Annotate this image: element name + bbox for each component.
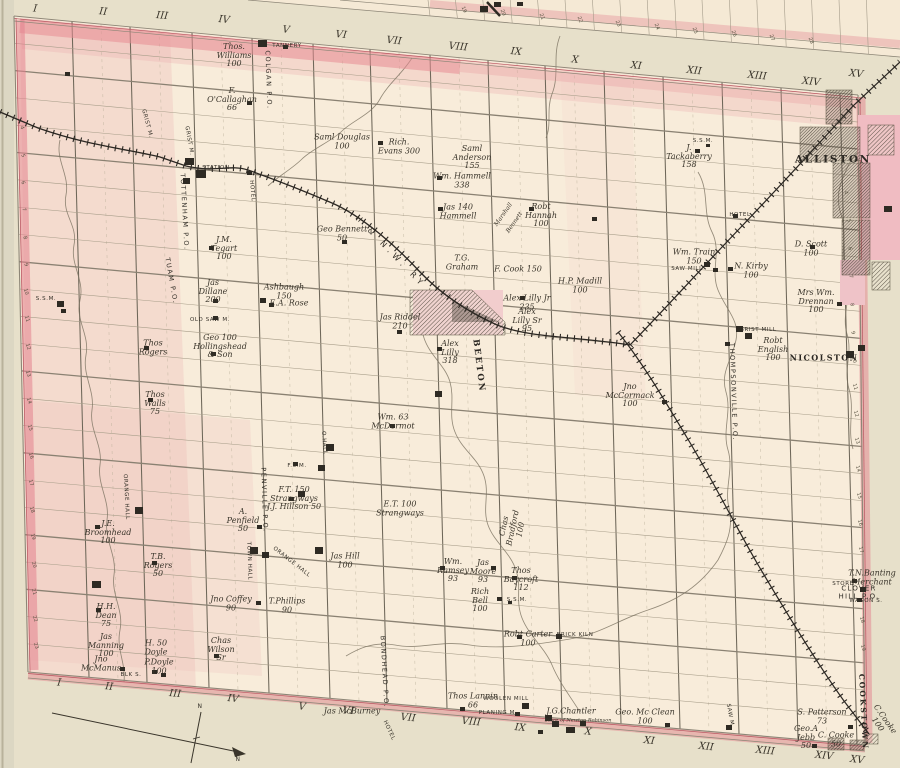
concession-numeral: XI (630, 61, 642, 73)
lot-number: 7 (20, 208, 26, 213)
map-label: SAW MILL (671, 267, 703, 273)
concession-numeral: XV (849, 755, 864, 767)
map-label: F. O'Callaghan 66 (207, 87, 257, 113)
map-label: HOTEL (729, 213, 750, 219)
lot-number: 15 (855, 492, 862, 500)
map-label: TANNERY (272, 44, 301, 50)
lot-number: 16 (856, 519, 863, 527)
map-label: Wm. 63 McDermot (371, 413, 414, 430)
concession-numeral: III (156, 11, 169, 23)
lot-number: 14 (24, 397, 31, 405)
lot-number: 6 (19, 181, 25, 186)
concession-numeral: IV (227, 694, 239, 706)
map-label: A. Penfield 50 (227, 508, 260, 534)
lot-number: 12 (23, 343, 30, 351)
map-label: Jas Hill 100 (330, 552, 359, 569)
map-label: F. Cook 150 (494, 266, 542, 275)
lot-number: 5 (19, 154, 25, 159)
map-label: Robt English 100 (758, 337, 789, 363)
map-label: Chas Wilson Sr (207, 637, 234, 663)
map-label: E.A. Rose (270, 300, 309, 309)
map-label: THOMPSONVILLE P.O. (728, 343, 738, 441)
map-label: STATION (202, 166, 229, 172)
map-label: N (197, 704, 202, 710)
map-label: OLD SAW M. (190, 318, 230, 324)
lot-number: 20 (498, 9, 505, 17)
lot-number: 21 (29, 588, 36, 596)
map-label: GRIST M. (139, 109, 152, 139)
map-label: Jas Dillane 200 (199, 279, 228, 305)
lot-number: 11 (22, 315, 29, 323)
concession-numeral: V (298, 702, 306, 713)
lot-number: 24 (652, 23, 659, 31)
map-label: F.T. 150 Strangways J.J. Hillson 50 (267, 486, 321, 512)
lot-number: 27 (767, 34, 774, 42)
map-label: PLANING M. (479, 711, 518, 717)
concession-numeral: X (571, 55, 579, 66)
map-label: PENVILLE P.O. (259, 467, 268, 533)
map-label: Mrs Wm. Drennan 100 (797, 289, 834, 315)
map-label: Bennett (505, 211, 524, 234)
concession-numeral: XIV (801, 77, 820, 90)
map-label: Jas Moore 93 (470, 559, 496, 585)
concession-numeral: XIV (814, 751, 833, 764)
map-label: Wm. Train 150 (673, 248, 716, 265)
map-label: Alex Lilly Sr 95 (512, 308, 541, 334)
map-label: J. Tackaberry 158 (666, 144, 712, 170)
map-label: Jas Riddel 210 (380, 313, 421, 330)
lot-number: 22 (575, 16, 582, 24)
lot-number: 15 (25, 424, 32, 432)
map-label: ORANGE HALL (121, 474, 129, 520)
map-label: Thos. Williams 100 (217, 43, 252, 69)
concession-numeral: VII (386, 36, 402, 48)
map-label: T.G. Graham (446, 254, 479, 271)
concession-numeral: VIII (448, 42, 468, 55)
map-label: H.H. Dean 75 (95, 603, 116, 629)
map-label: C. Cooke 50 (818, 731, 854, 748)
map-label: F.S.M. (287, 464, 306, 470)
lot-number: 9 (849, 331, 855, 335)
map-label: Alex Lilly 318 (441, 340, 459, 366)
concession-numeral: II (99, 7, 108, 19)
map-label: Geo. Mc Clean 100 (615, 708, 674, 725)
lot-number: 18 (858, 616, 865, 624)
map-label: N (235, 757, 240, 763)
map-label: Geo 100 Hollingshead & Son (193, 334, 247, 360)
lot-number: 13 (853, 437, 860, 445)
map-label: J.E. Broomhead 100 (85, 520, 132, 546)
map-label: T.Phillips 90 (269, 597, 306, 614)
map-label: Robt Hannah 100 (525, 203, 557, 229)
map-label: Jno McCormack 100 (605, 383, 654, 409)
lot-number: 22 (30, 615, 37, 623)
map-label: Rich Bell 100 (471, 588, 489, 614)
concession-numeral: VII (400, 713, 416, 725)
map-label: TOTTENHAM P.O. (178, 173, 189, 250)
map-label: HOTEL (381, 720, 395, 742)
lot-number: 10 (21, 288, 28, 296)
lot-number: 4 (18, 126, 24, 131)
map-sheet: IIIIIIIVVVIVIIVIIIIXXXIXIIXIIIXIVXVIIIII… (0, 0, 900, 768)
map-label: O.HALL (319, 431, 327, 455)
map-label: ORANGE HALL (271, 547, 311, 580)
lot-number: 4 (842, 191, 848, 195)
concession-numeral: XII (686, 66, 702, 78)
map-label: S.S.M. (507, 598, 528, 604)
map-label: WAGON S. (849, 599, 882, 605)
map-label: Thos Walls 75 (144, 391, 166, 417)
concession-numeral: XIII (755, 746, 775, 759)
lot-number: 9 (22, 263, 28, 268)
map-label: Store of Newton Robinson (545, 718, 612, 723)
map-labels: IIIIIIIVVVIVIIVIIIIXXXIXIIXIIIXIVXVIIIII… (0, 0, 900, 768)
map-label: S.S.M. (36, 297, 57, 303)
map-label: HOTEL (247, 180, 255, 202)
map-label: H. 50 Doyle (144, 639, 167, 656)
map-label: GRIST MILL (740, 328, 777, 334)
lot-number: 23 (31, 642, 38, 650)
lot-number: 23 (613, 20, 620, 28)
map-label: COLGAN P.O. (263, 50, 272, 109)
map-label: Jno McManus (81, 655, 121, 672)
concession-numeral: IV (218, 15, 230, 27)
lot-number: 18 (27, 506, 34, 514)
map-label: Jas McBurney (324, 708, 381, 717)
lot-number: 5 (845, 219, 851, 223)
lot-number: 7 (847, 275, 853, 279)
lot-number: 21 (537, 13, 544, 21)
concession-numeral: VI (335, 30, 347, 42)
concession-numeral: I (32, 4, 37, 15)
lot-number: 14 (854, 465, 861, 473)
lot-number: 11 (851, 383, 858, 391)
map-label: Chas Bradford 100 (497, 508, 530, 549)
concession-numeral: XI (643, 736, 655, 748)
map-label: Robt Carter 100 (504, 630, 552, 647)
concession-numeral: V (282, 25, 290, 36)
map-label: Thos Rogers (139, 339, 168, 356)
map-label: Wm. Hammell 338 (433, 172, 491, 189)
map-label: Jno Coffey 90 (210, 595, 252, 612)
map-label: BEETON (470, 339, 486, 393)
map-label: WOOLEN MILL (483, 697, 529, 703)
concession-numeral: XII (698, 742, 714, 754)
map-label: Jas 140 Hammell (440, 203, 477, 220)
lot-number: 28 (806, 37, 813, 45)
map-label: H & N.W. RY (353, 214, 427, 290)
map-label: COOKSTOWN (857, 674, 869, 751)
map-label: N. Kirby 100 (734, 262, 768, 279)
map-label: Geo Bennett 50 (317, 225, 368, 242)
map-label: D. Scott 100 (795, 240, 827, 257)
map-label: Thos Baycroft 112 (504, 567, 538, 593)
concession-numeral: X (584, 727, 592, 738)
lot-number: 6 (846, 247, 852, 251)
lot-number: 19 (859, 644, 866, 652)
lot-number: 19 (459, 6, 466, 14)
map-label: H.P. Madill 100 (558, 277, 602, 294)
lot-number: 20 (29, 561, 36, 569)
map-label: P.Doyle 100 (144, 658, 173, 675)
lot-number: 12 (852, 410, 859, 418)
map-label: ALLISTON (795, 154, 871, 165)
lot-number: 17 (857, 546, 864, 554)
map-label: T.B. Rogers 50 (144, 553, 173, 579)
lot-number: 13 (23, 370, 30, 378)
lot-number: 17 (26, 479, 33, 487)
concession-numeral: IX (514, 723, 526, 735)
map-label: BLK S. (120, 673, 141, 679)
map-label: Rich. Evans 300 (378, 138, 420, 155)
map-label: GRIST M. (183, 126, 194, 156)
lot-number: 10 (850, 356, 857, 364)
lot-number: 26 (729, 30, 736, 38)
map-label: S. Patterson 73 (797, 708, 846, 725)
concession-numeral: II (105, 682, 114, 694)
map-label: J.G.Chantler (546, 708, 595, 717)
map-label: TUAM P.O. (163, 257, 178, 305)
map-label: BONDHEAD P.O. (379, 636, 390, 709)
map-label: J.M. Tegart 100 (211, 236, 237, 262)
lot-number: 25 (690, 27, 697, 35)
concession-numeral: IX (510, 47, 522, 59)
map-label: Saml Anderson 155 (453, 145, 492, 171)
concession-numeral: VIII (461, 717, 481, 730)
lot-number: 16 (26, 452, 33, 460)
concession-numeral: III (169, 689, 182, 701)
map-label: TOWN HALL (244, 542, 251, 581)
concession-numeral: I (56, 678, 61, 689)
lot-number: 8 (21, 236, 27, 241)
map-label: Saml Douglas 100 (314, 133, 370, 150)
lot-number: 8 (848, 303, 854, 307)
concession-numeral: XV (848, 69, 863, 81)
map-label: SAW M. (724, 703, 734, 728)
concession-numeral: XIII (747, 71, 767, 84)
map-label: Wm. Ramsey 93 (437, 558, 469, 584)
map-label: BRICK KILN (557, 633, 594, 639)
map-label: E.T. 100 Strangways (376, 500, 424, 517)
map-label: Geo.A Jebb 50 (794, 725, 818, 751)
map-label: NICOLSTON (790, 354, 859, 363)
lot-number: 19 (28, 533, 35, 541)
